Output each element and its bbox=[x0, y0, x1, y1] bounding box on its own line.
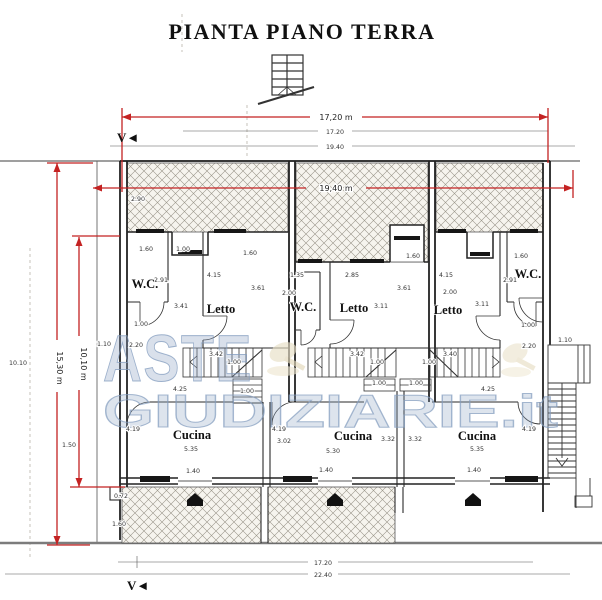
gavel-icon bbox=[267, 338, 306, 376]
dimension-label: 1.40 bbox=[319, 467, 333, 474]
floor-plan-drawing: PIANTA PIANO TERRA bbox=[0, 0, 602, 600]
dimension-label: 1.40 bbox=[186, 468, 200, 475]
dimension-label: 1.00 bbox=[521, 322, 535, 329]
dimension-label: 4.25 bbox=[173, 386, 187, 393]
dimension-label: 22.40 bbox=[314, 572, 332, 579]
dimension-label: 1.40 bbox=[467, 467, 481, 474]
dimension-label: 2.00 bbox=[443, 289, 457, 296]
view-marker-bottom: V◄ bbox=[127, 578, 149, 593]
dimension-label: 2.20 bbox=[522, 343, 536, 350]
dimension-label: 17.20 bbox=[326, 129, 344, 136]
dimension-label: 17.20 bbox=[314, 560, 332, 567]
dimension-label: 3.41 bbox=[174, 303, 188, 310]
dimension-label: 3.61 bbox=[251, 285, 265, 292]
room-label: Cucina bbox=[173, 428, 212, 442]
dimension-label: 3.02 bbox=[277, 438, 291, 445]
dimension-label: 4.25 bbox=[481, 386, 495, 393]
dimension-label: 2.20 bbox=[129, 342, 143, 349]
dimension-label: 5.35 bbox=[184, 446, 198, 453]
dimension-label: 2.90 bbox=[131, 196, 145, 203]
dimension-label: 1.00 bbox=[227, 359, 241, 366]
dimension-label: 1.10 bbox=[558, 337, 572, 344]
dimension-label: 1.00 bbox=[422, 359, 436, 366]
dimension-label: 1.60 bbox=[112, 521, 126, 528]
floor-plan-page: PIANTA PIANO TERRA bbox=[0, 0, 602, 600]
room-label: Letto bbox=[207, 302, 235, 316]
dimension-label: 19.40 bbox=[326, 144, 344, 151]
room-label: Letto bbox=[340, 301, 368, 315]
dimension-label: 3.32 bbox=[408, 436, 422, 443]
dimension-label: 0.72 bbox=[114, 493, 128, 500]
dimension-label: 5.35 bbox=[470, 446, 484, 453]
dimension-label: 1.60 bbox=[514, 253, 528, 260]
dimension-label: 1.60 bbox=[406, 253, 420, 260]
dimension-label: 3.11 bbox=[374, 303, 388, 310]
dimension-label: 2.85 bbox=[345, 272, 359, 279]
dimension-label: 3.40 bbox=[443, 351, 457, 358]
dimension-label: 1.00 bbox=[240, 388, 254, 395]
dimension-label: 1.00 bbox=[372, 380, 386, 387]
dimension-label: 1.00 bbox=[176, 246, 190, 253]
dimension-label: 4.19 bbox=[126, 426, 140, 433]
room-label: Letto bbox=[434, 303, 462, 317]
watermark: ASTE GIUDIZIARIE.it bbox=[103, 321, 558, 437]
red-dimension-label: 19,40 m bbox=[319, 184, 352, 193]
dimension-label: 10.10 bbox=[9, 360, 27, 367]
room-label: W.C. bbox=[290, 300, 317, 314]
dimension-label: 4.19 bbox=[522, 426, 536, 433]
room-label: Cucina bbox=[334, 429, 373, 443]
dimension-label: 1.00 bbox=[134, 321, 148, 328]
dimension-label: 1.35 bbox=[290, 272, 304, 279]
dimension-label: 3.42 bbox=[209, 351, 223, 358]
dimension-label: 3.42 bbox=[350, 351, 364, 358]
red-dimension-label: 15,30 m bbox=[55, 351, 64, 384]
watermark-line1: ASTE bbox=[103, 321, 253, 395]
red-dimension-label: 17,20 m bbox=[319, 113, 352, 122]
page-title: PIANTA PIANO TERRA bbox=[169, 19, 436, 44]
red-dimension-label: 10,10 m bbox=[79, 347, 88, 380]
dimension-label: 3.61 bbox=[397, 285, 411, 292]
view-marker-top: V◄ bbox=[117, 130, 139, 145]
dimension-label: 1.60 bbox=[139, 246, 153, 253]
dimension-label: 1.00 bbox=[409, 380, 423, 387]
room-label: Cucina bbox=[458, 429, 497, 443]
dimension-label: 1.50 bbox=[62, 442, 76, 449]
dimension-label: 2.00 bbox=[282, 290, 296, 297]
room-label: W.C. bbox=[132, 277, 159, 291]
walls-facade-front bbox=[120, 478, 550, 484]
dimension-label: 1.60 bbox=[243, 250, 257, 257]
dimension-label: 4.15 bbox=[439, 272, 453, 279]
dimension-label: 1.00 bbox=[370, 359, 384, 366]
dimension-label: 4.15 bbox=[207, 272, 221, 279]
dimension-label: 3.11 bbox=[475, 301, 489, 308]
stair-symbol-icon bbox=[258, 55, 314, 104]
dimension-label: 4.19 bbox=[272, 426, 286, 433]
dimension-label: 3.32 bbox=[381, 436, 395, 443]
room-label: W.C. bbox=[515, 267, 542, 281]
dimension-label: 1.10 bbox=[97, 341, 111, 348]
dimension-label: 5.30 bbox=[326, 448, 340, 455]
